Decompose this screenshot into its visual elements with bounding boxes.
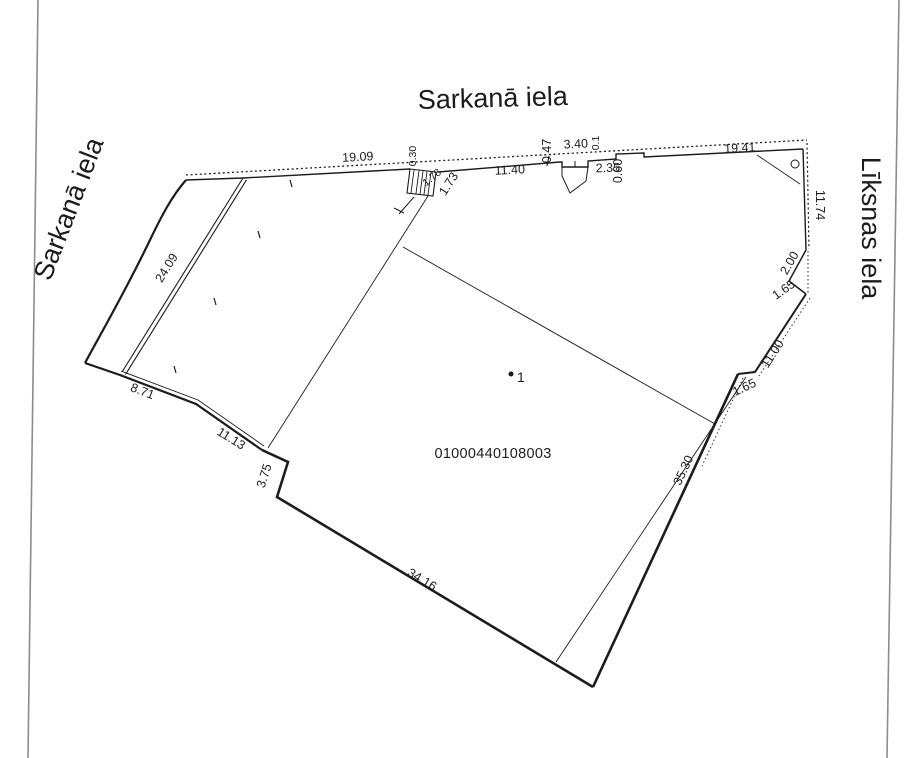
boundary-right-upper <box>803 149 806 250</box>
boundary-bottom-edge <box>262 450 593 687</box>
street-label-right: Līksnas iela <box>856 157 886 301</box>
notch-tail-line <box>394 197 414 214</box>
survey-plan-page: Sarkanā iela Sarkanā iela Līksnas iela 0… <box>0 0 918 758</box>
dim-8-71: 8.71 <box>129 380 157 402</box>
dim-0-1: 0.1 <box>590 136 602 151</box>
strip-line-outer <box>126 180 247 375</box>
dim-3-75: 3.75 <box>254 462 275 490</box>
dim-24-09: 24.09 <box>152 251 180 285</box>
boundary-southwest-thin <box>121 371 264 446</box>
dim-1-65-notch: 1.65 <box>770 277 798 302</box>
dim-19-41: 19.41 <box>724 140 756 156</box>
survey-tick-marks <box>174 180 292 373</box>
dim-3-40: 3.40 <box>563 136 588 151</box>
dim-0-47: 0.47 <box>540 139 554 163</box>
cadastral-number: 01000440108003 <box>434 446 551 462</box>
page-edge-left <box>28 0 38 758</box>
plan-labels: Sarkanā iela Sarkanā iela Līksnas iela 0… <box>28 81 886 594</box>
street-line-right <box>807 143 809 249</box>
dim-11-74: 11.74 <box>813 190 827 220</box>
boundary-top-left <box>186 169 410 180</box>
structure-flag <box>562 167 588 193</box>
corner-diagonal <box>757 155 800 184</box>
street-label-top: Sarkanā iela <box>417 81 569 115</box>
interior-line-parallel <box>556 377 746 662</box>
parcel-linework <box>85 140 810 687</box>
dim-34-16: 34.16 <box>405 566 439 594</box>
point-1-label: 1 <box>517 369 525 385</box>
page-edge-right <box>887 0 899 758</box>
dim-0-30: 0.30 <box>407 146 419 167</box>
dim-11-00: 11.00 <box>759 337 787 370</box>
interior-line-division <box>403 247 715 424</box>
corner-marker-circle <box>791 160 799 168</box>
dim-0-60: 0.60 <box>611 159 625 183</box>
interior-line-wedge <box>268 196 428 448</box>
strip-line-inner <box>122 178 243 372</box>
dim-11-40: 11.40 <box>494 162 525 178</box>
point-1-dot <box>509 372 514 377</box>
dim-19-09: 19.09 <box>342 149 374 165</box>
street-label-left: Sarkanā iela <box>28 132 110 284</box>
cadastral-plan-canvas: Sarkanā iela Sarkanā iela Līksnas iela 0… <box>0 0 918 758</box>
